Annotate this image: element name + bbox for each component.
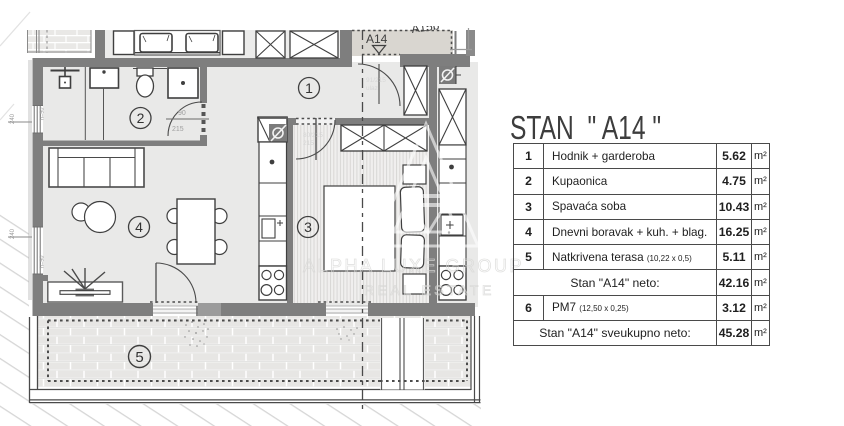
svg-text:4: 4 bbox=[135, 219, 143, 235]
svg-text:ulaz: ulaz bbox=[366, 85, 378, 92]
svg-text:80/215: 80/215 bbox=[303, 132, 323, 139]
svg-text:3: 3 bbox=[304, 219, 312, 235]
svg-text:215: 215 bbox=[172, 126, 184, 133]
svg-text:A14: A14 bbox=[366, 32, 388, 46]
svg-text:h=90: h=90 bbox=[40, 256, 46, 268]
svg-text:REAL ESTATE: REAL ESTATE bbox=[364, 282, 495, 298]
svg-text:240: 240 bbox=[10, 113, 16, 124]
svg-text:1: 1 bbox=[305, 80, 313, 96]
svg-text:h=90: h=90 bbox=[40, 108, 46, 120]
svg-text:5: 5 bbox=[135, 349, 143, 366]
svg-text:215: 215 bbox=[303, 140, 314, 147]
svg-text:240: 240 bbox=[10, 228, 16, 239]
svg-text:2: 2 bbox=[137, 110, 145, 126]
svg-text:ALPHA LUXE GROUP: ALPHA LUXE GROUP bbox=[303, 256, 524, 276]
svg-text:90: 90 bbox=[178, 110, 186, 117]
svg-text:91/215: 91/215 bbox=[366, 77, 386, 84]
